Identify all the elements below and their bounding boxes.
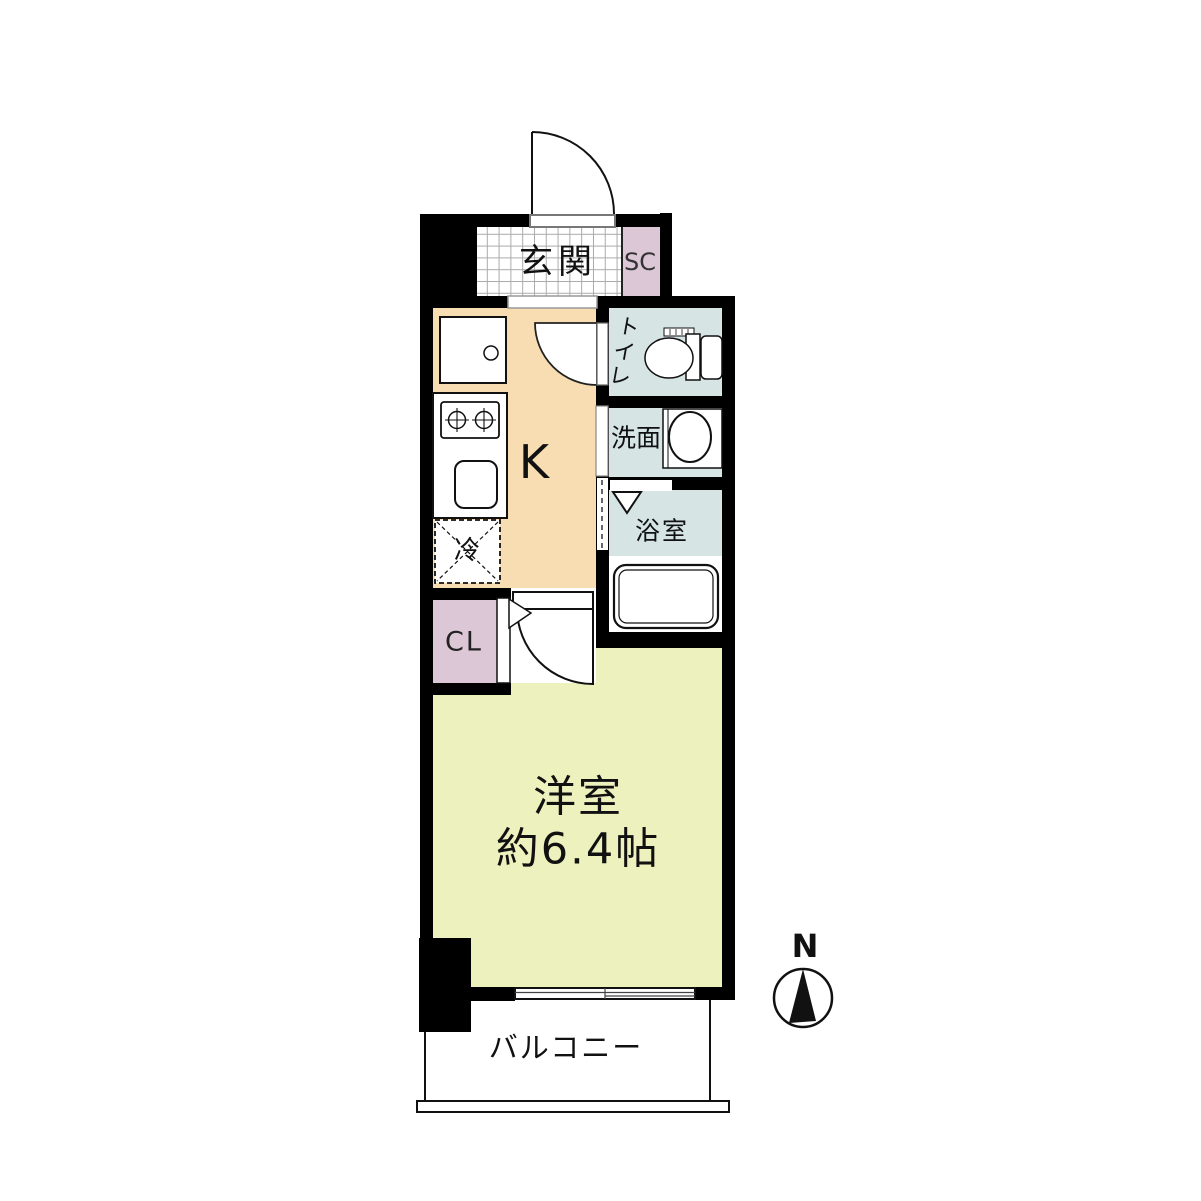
floor-plan: 玄関 SC トイレ 洗面 浴室 K 冷 CL 洋室 約6.4帖 バルコニー N (0, 0, 1201, 1201)
washing-machine-icon (440, 317, 506, 383)
sliding-window-icon (515, 988, 695, 999)
room-door-icon (509, 592, 593, 684)
shoe-closet-label: SC (624, 250, 656, 274)
refrigerator-label: 冷 (454, 538, 480, 564)
bathtub-icon (614, 565, 718, 628)
main-room-label: 洋室 約6.4帖 (496, 772, 660, 877)
closet-sliding-door (497, 598, 510, 683)
washroom-door-opening (596, 406, 608, 476)
compass-icon (774, 969, 832, 1027)
toilet-icon (645, 328, 722, 380)
main-room-name: 洋室 (496, 772, 660, 824)
kitchen-door-icon (535, 323, 608, 385)
entrance-door-icon (530, 132, 615, 227)
entrance-threshold (508, 296, 597, 308)
washbasin-icon (663, 409, 722, 468)
bathroom-door-icon (610, 480, 672, 513)
balcony-label: バルコニー (489, 1034, 643, 1063)
fixtures-layer (0, 0, 1201, 1201)
entrance-label: 玄関 (519, 245, 597, 279)
washroom-label: 洗面 (611, 426, 661, 451)
main-room-size: 約6.4帖 (496, 824, 660, 876)
kitchen-counter-icon (433, 393, 507, 518)
bathroom-label: 浴室 (635, 519, 689, 544)
kitchen-label: K (519, 439, 549, 485)
open-wall-dashed (597, 478, 608, 550)
compass-north-label: N (792, 930, 819, 962)
closet-label: CL (445, 629, 483, 656)
